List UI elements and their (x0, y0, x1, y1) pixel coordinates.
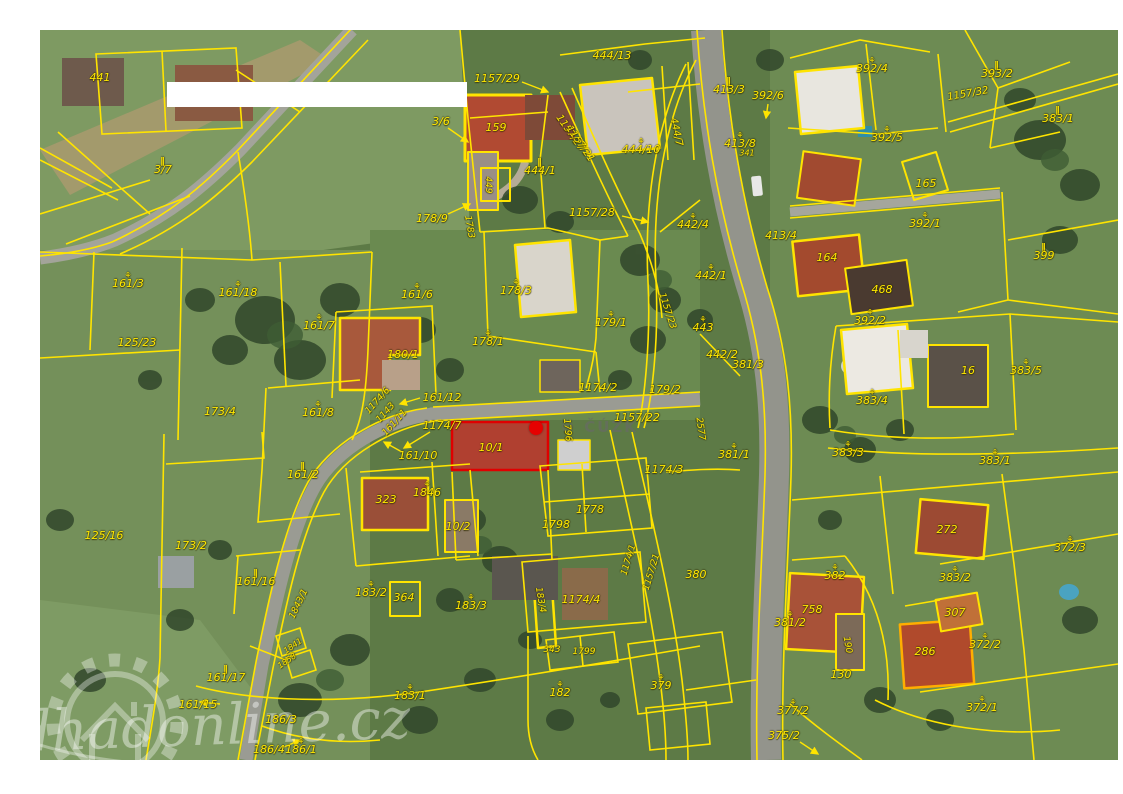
redacted-label-area (167, 82, 467, 107)
cadastral-map[interactable]: © ČÚZK odhadonline.cz 441∥3/73/61157/294… (0, 0, 1123, 794)
selected-location-marker (529, 421, 543, 435)
map-canvas (0, 0, 1123, 794)
cadastral-map-page: © ČÚZK odhadonline.cz 441∥3/73/61157/294… (0, 0, 1123, 794)
cuzk-watermark: © ČÚZK (560, 418, 638, 436)
